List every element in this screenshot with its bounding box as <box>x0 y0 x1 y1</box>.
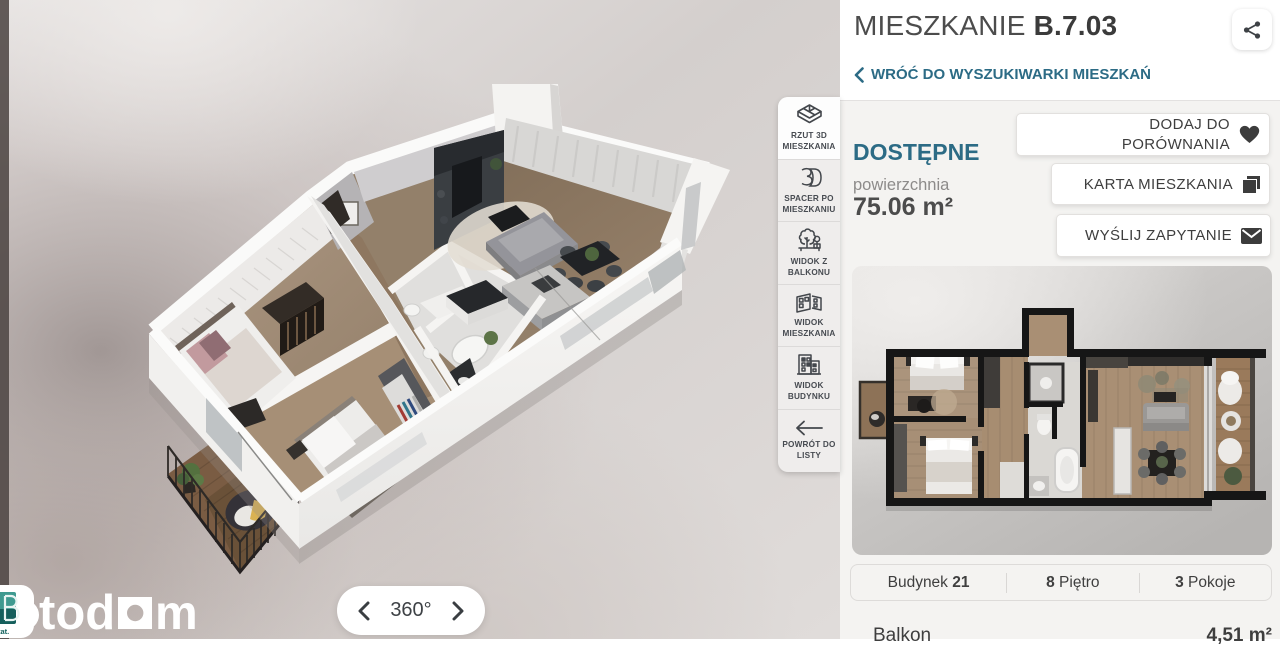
svg-text:tod: tod <box>39 586 115 639</box>
svg-text:m: m <box>155 587 198 639</box>
svg-text:tat.: tat. <box>0 627 9 636</box>
